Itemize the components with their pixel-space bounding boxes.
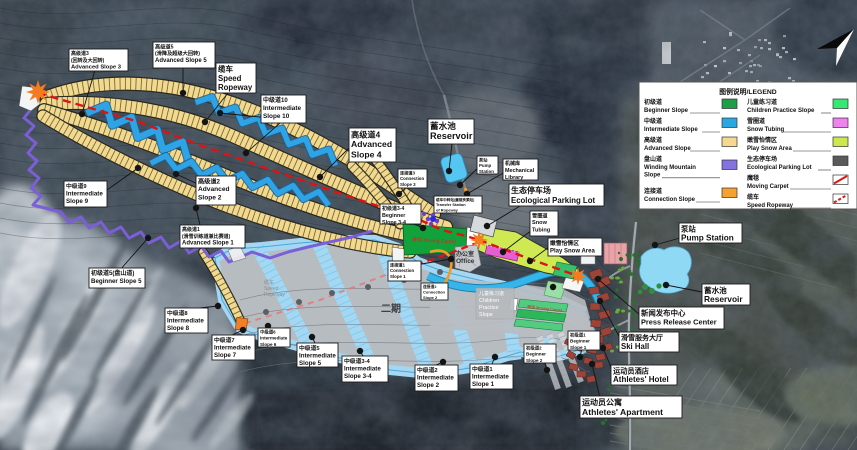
svg-text:Advanced: Advanced bbox=[351, 139, 392, 149]
svg-text:魔毯: 魔毯 bbox=[746, 174, 759, 182]
svg-text:泵站: 泵站 bbox=[680, 225, 696, 234]
svg-text:Ropeway: Ropeway bbox=[264, 292, 285, 298]
svg-text:雪圈道: 雪圈道 bbox=[747, 117, 765, 125]
svg-text:Slope 2: Slope 2 bbox=[417, 382, 440, 389]
svg-text:中级道3-4: 中级道3-4 bbox=[344, 357, 371, 365]
svg-text:Mechanical: Mechanical bbox=[505, 168, 535, 174]
svg-text:Intermediate: Intermediate bbox=[344, 365, 381, 372]
svg-text:Slope 6: Slope 6 bbox=[260, 342, 277, 347]
svg-text:儿童练习道: 儿童练习道 bbox=[746, 98, 777, 106]
svg-text:Slope 3: Slope 3 bbox=[400, 182, 416, 187]
svg-text:Beginner: Beginner bbox=[526, 352, 546, 357]
svg-text:高级道2: 高级道2 bbox=[198, 177, 221, 185]
svg-text:Slope 2: Slope 2 bbox=[423, 295, 438, 300]
svg-text:Ecological Parking Lot: Ecological Parking Lot bbox=[747, 165, 812, 171]
svg-text:Beginner: Beginner bbox=[570, 339, 590, 344]
svg-text:初级道1: 初级道1 bbox=[570, 332, 586, 339]
svg-text:高级道4: 高级道4 bbox=[351, 129, 381, 139]
svg-text:Ropeway: Ropeway bbox=[218, 83, 253, 92]
svg-text:Speed Ropeway: Speed Ropeway bbox=[747, 203, 794, 209]
svg-text:Reservoir: Reservoir bbox=[704, 294, 743, 304]
svg-text:中级道5: 中级道5 bbox=[299, 344, 320, 352]
svg-text:Slope 8: Slope 8 bbox=[167, 325, 190, 332]
svg-text:Children: Children bbox=[479, 298, 499, 304]
svg-text:Slope 2: Slope 2 bbox=[526, 358, 543, 363]
svg-text:Pump Station: Pump Station bbox=[681, 234, 734, 243]
svg-text:Pump: Pump bbox=[479, 163, 492, 168]
svg-text:Slope 1: Slope 1 bbox=[472, 381, 495, 388]
svg-text:Slope 7: Slope 7 bbox=[214, 352, 237, 359]
svg-text:初级道: 初级道 bbox=[644, 98, 662, 106]
svg-text:Intermediate: Intermediate bbox=[66, 190, 103, 197]
svg-text:Connection: Connection bbox=[400, 176, 424, 181]
svg-text:盘山道: 盘山道 bbox=[644, 155, 662, 163]
svg-text:Office: Office bbox=[456, 258, 475, 265]
svg-text:中级道7: 中级道7 bbox=[214, 336, 235, 344]
svg-text:运动员酒店: 运动员酒店 bbox=[613, 366, 649, 375]
svg-text:高级道5: 高级道5 bbox=[155, 42, 174, 50]
svg-text:Slope 9: Slope 9 bbox=[66, 198, 89, 205]
svg-text:高级道3: 高级道3 bbox=[71, 50, 89, 57]
svg-text:Beginner Slope: Beginner Slope bbox=[644, 108, 689, 114]
svg-text:Intermediate: Intermediate bbox=[214, 344, 251, 351]
svg-text:二期: 二期 bbox=[381, 302, 401, 315]
svg-text:Slope 2: Slope 2 bbox=[198, 194, 222, 201]
svg-text:Tubing: Tubing bbox=[532, 227, 551, 233]
svg-text:初级道5(盘山道): 初级道5(盘山道) bbox=[91, 269, 134, 277]
svg-text:(滑雪训练道兼比赛道): (滑雪训练道兼比赛道) bbox=[182, 233, 231, 240]
svg-text:Slope 1: Slope 1 bbox=[570, 345, 587, 350]
svg-text:缆车: 缆车 bbox=[264, 279, 274, 286]
svg-text:中级道9: 中级道9 bbox=[66, 182, 87, 190]
svg-text:中级道10: 中级道10 bbox=[263, 96, 288, 104]
svg-text:运动员公寓: 运动员公寓 bbox=[582, 397, 622, 407]
svg-text:Slope 5: Slope 5 bbox=[299, 360, 322, 367]
svg-text:Press Release Center: Press Release Center bbox=[641, 318, 717, 327]
svg-text:Snow: Snow bbox=[532, 220, 548, 226]
svg-text:Play Snow Area: Play Snow Area bbox=[550, 248, 595, 254]
svg-text:Connection Slope: Connection Slope bbox=[644, 197, 696, 203]
svg-text:Play Snow Area: Play Snow Area bbox=[747, 146, 792, 152]
svg-text:Advanced Slope 5: Advanced Slope 5 bbox=[155, 58, 207, 64]
svg-text:中级道8: 中级道8 bbox=[167, 309, 188, 317]
svg-text:蓄水池: 蓄水池 bbox=[430, 120, 456, 131]
svg-text:Beginner Slope 5: Beginner Slope 5 bbox=[91, 278, 142, 285]
svg-text:Intermediate: Intermediate bbox=[263, 105, 301, 112]
svg-text:Slope 3-4: Slope 3-4 bbox=[344, 373, 372, 380]
svg-text:Slope 3-4: Slope 3-4 bbox=[382, 220, 406, 226]
svg-text:儿童练习道: 儿童练习道 bbox=[479, 290, 504, 297]
svg-text:Beginner: Beginner bbox=[382, 213, 406, 219]
svg-text:Slope: Slope bbox=[479, 312, 493, 318]
svg-text:新闻发布中心: 新闻发布中心 bbox=[641, 309, 686, 318]
svg-text:Connection: Connection bbox=[423, 289, 446, 294]
svg-text:Library: Library bbox=[505, 175, 523, 181]
svg-text:Winding Mountain: Winding Mountain bbox=[644, 165, 696, 171]
svg-text:Intermediate: Intermediate bbox=[299, 352, 336, 359]
svg-text:高级道: 高级道 bbox=[644, 136, 662, 144]
svg-text:初级道2: 初级道2 bbox=[526, 345, 542, 352]
svg-text:Transfer Station: Transfer Station bbox=[436, 202, 466, 207]
svg-text:Practice: Practice bbox=[479, 305, 498, 311]
svg-text:图例说明/LEGEND: 图例说明/LEGEND bbox=[719, 87, 776, 96]
svg-text:Moving Carpet: Moving Carpet bbox=[747, 184, 789, 190]
svg-text:Ski Hall: Ski Hall bbox=[621, 342, 649, 351]
svg-text:Children Practice Slope: Children Practice Slope bbox=[747, 108, 815, 114]
svg-text:生态停车场: 生态停车场 bbox=[511, 185, 551, 195]
svg-text:Slope 4: Slope 4 bbox=[351, 149, 382, 159]
svg-text:中级道2: 中级道2 bbox=[417, 366, 438, 374]
svg-text:连接道: 连接道 bbox=[644, 187, 662, 195]
svg-text:缆车: 缆车 bbox=[218, 64, 233, 74]
svg-text:(滑降及超级大回转): (滑降及超级大回转) bbox=[155, 49, 200, 57]
svg-text:缆车: 缆车 bbox=[747, 193, 759, 201]
svg-text:连接道2: 连接道2 bbox=[423, 284, 437, 289]
svg-text:Intermediate Slope: Intermediate Slope bbox=[644, 127, 698, 133]
svg-text:中级道6: 中级道6 bbox=[260, 329, 276, 336]
svg-text:Advanced Slope: Advanced Slope bbox=[644, 146, 691, 152]
svg-text:生态停车场: 生态停车场 bbox=[747, 155, 777, 163]
svg-text:Advanced Slope 1: Advanced Slope 1 bbox=[182, 240, 234, 246]
svg-text:Athletes' Hotel: Athletes' Hotel bbox=[613, 375, 669, 384]
svg-text:机械库: 机械库 bbox=[504, 160, 520, 167]
svg-text:Slope 10: Slope 10 bbox=[263, 113, 290, 120]
svg-text:Advanced: Advanced bbox=[198, 186, 230, 193]
svg-text:嫩雪怡情区: 嫩雪怡情区 bbox=[550, 239, 579, 247]
svg-text:Intermediate: Intermediate bbox=[417, 374, 454, 381]
svg-text:Intermediate: Intermediate bbox=[472, 373, 509, 380]
svg-text:(回转及大回转): (回转及大回转) bbox=[71, 57, 105, 64]
svg-text:Slope 1: Slope 1 bbox=[390, 274, 406, 279]
svg-text:Advanced Slope 3: Advanced Slope 3 bbox=[71, 64, 122, 70]
svg-text:Speed: Speed bbox=[218, 74, 242, 83]
svg-text:办公室: 办公室 bbox=[456, 250, 474, 258]
svg-text:初级道3-4: 初级道3-4 bbox=[382, 205, 404, 212]
svg-text:Snow Tubing: Snow Tubing bbox=[747, 127, 785, 133]
svg-text:Reservoir: Reservoir bbox=[430, 131, 473, 141]
svg-text:Intermediate: Intermediate bbox=[167, 317, 204, 324]
svg-text:中级道1: 中级道1 bbox=[472, 365, 493, 373]
svg-text:雪圈道: 雪圈道 bbox=[532, 211, 548, 219]
svg-text:Athletes' Apartment: Athletes' Apartment bbox=[582, 407, 663, 417]
svg-text:of Ropeway: of Ropeway bbox=[436, 208, 459, 213]
svg-text:Ecological Parking Lot: Ecological Parking Lot bbox=[511, 196, 595, 205]
svg-text:Station: Station bbox=[479, 169, 494, 174]
svg-text:Slope: Slope bbox=[644, 173, 661, 179]
svg-text:Intermediate: Intermediate bbox=[260, 336, 288, 341]
svg-text:中级道: 中级道 bbox=[644, 117, 662, 125]
svg-text:Connection: Connection bbox=[390, 268, 414, 273]
svg-text:高级道1: 高级道1 bbox=[182, 226, 200, 233]
svg-text:嫩雪怡情区: 嫩雪怡情区 bbox=[747, 136, 777, 144]
